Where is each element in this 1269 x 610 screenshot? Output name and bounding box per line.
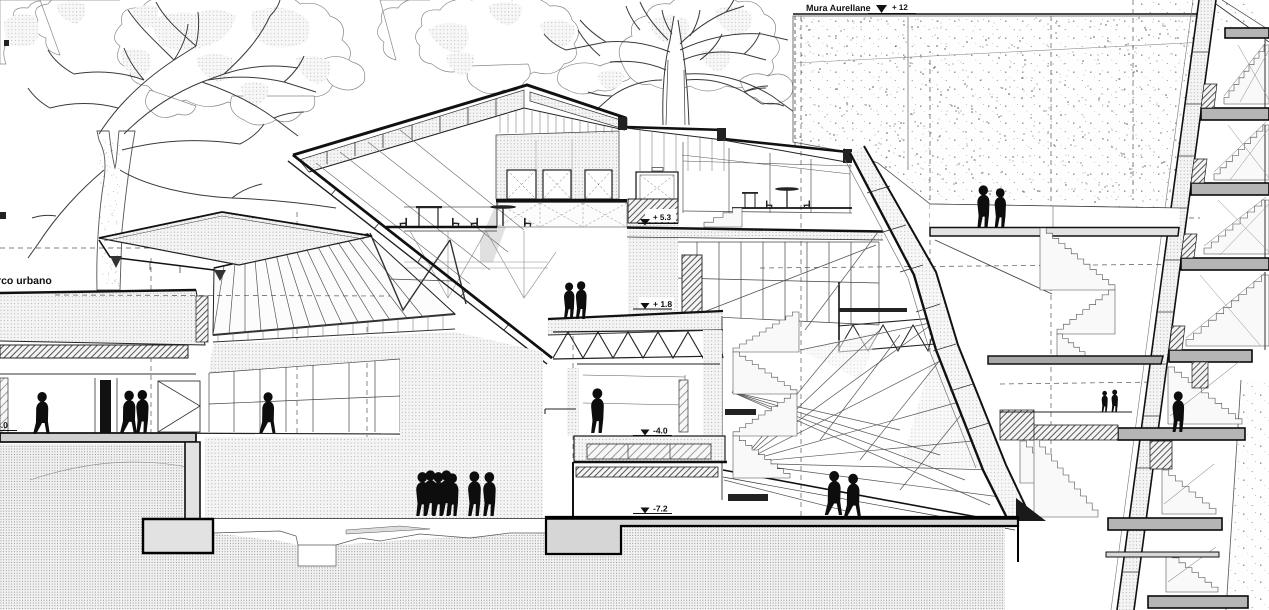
svg-text:-7.2: -7.2: [653, 504, 668, 514]
svg-text:rco urbano: rco urbano: [0, 275, 52, 287]
svg-text:-4.0: -4.0: [653, 426, 668, 436]
svg-text:+ 12: + 12: [892, 3, 908, 12]
svg-text:4.0: 4.0: [0, 420, 8, 430]
svg-text:+ 1.8: + 1.8: [653, 299, 672, 309]
svg-text:Mura Aurellane: Mura Aurellane: [806, 3, 871, 13]
svg-text:+ 5.3: + 5.3: [653, 213, 672, 222]
